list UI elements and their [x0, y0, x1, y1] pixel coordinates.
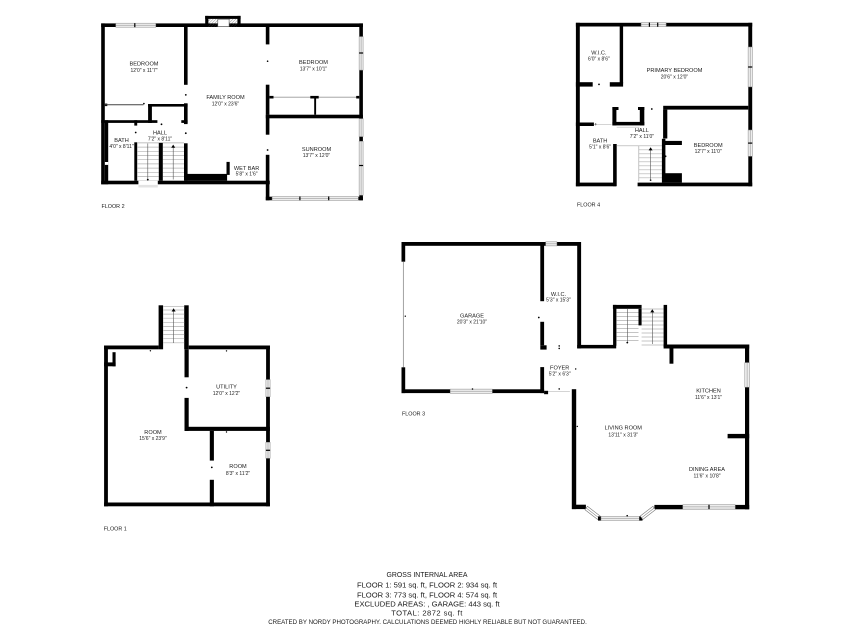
svg-text:BEDROOM: BEDROOM — [299, 60, 328, 66]
svg-text:EXCLUDED AREAS: , GARAGE: 443: EXCLUDED AREAS: , GARAGE: 443 sq. ft — [354, 600, 500, 609]
svg-text:CREATED BY NORDY PHOTOGRAPHY.: CREATED BY NORDY PHOTOGRAPHY. CALCULATIO… — [268, 619, 587, 626]
svg-text:12'0" x 11'7": 12'0" x 11'7" — [130, 68, 157, 74]
svg-text:13'11" x 31'3": 13'11" x 31'3" — [608, 433, 638, 439]
svg-text:SUNROOM: SUNROOM — [302, 147, 332, 153]
svg-text:FAMILY ROOM: FAMILY ROOM — [206, 95, 245, 101]
svg-text:FOYER: FOYER — [550, 365, 569, 371]
svg-text:7'2" x 8'11": 7'2" x 8'11" — [148, 137, 172, 143]
svg-text:TOTAL: 2872 sq. ft: TOTAL: 2872 sq. ft — [391, 609, 463, 618]
svg-text:5'8" x 1'6": 5'8" x 1'6" — [236, 172, 258, 178]
svg-text:5'1" x 8'6": 5'1" x 8'6" — [589, 145, 611, 151]
svg-text:FLOOR 1: 591 sq. ft, FLOOR 2:: FLOOR 1: 591 sq. ft, FLOOR 2: 934 sq. ft — [357, 580, 498, 589]
svg-text:UTILITY: UTILITY — [216, 385, 237, 391]
svg-text:20'3" x 21'10": 20'3" x 21'10" — [457, 320, 487, 326]
svg-text:4'0" x 8'11": 4'0" x 8'11" — [109, 144, 133, 150]
svg-text:KITCHEN: KITCHEN — [696, 389, 721, 395]
svg-text:PRIMARY BEDROOM: PRIMARY BEDROOM — [647, 68, 703, 74]
svg-text:20'6" x 12'0": 20'6" x 12'0" — [661, 74, 689, 80]
svg-text:DINING AREA: DINING AREA — [689, 467, 725, 473]
svg-text:LIVING ROOM: LIVING ROOM — [605, 426, 643, 432]
svg-text:GARAGE: GARAGE — [460, 313, 484, 319]
svg-text:11'6" x 13'1": 11'6" x 13'1" — [695, 395, 722, 401]
svg-text:8'3" x 11'2": 8'3" x 11'2" — [226, 471, 250, 477]
svg-text:FLOOR 3: 773 sq. ft, FLOOR 4:: FLOOR 3: 773 sq. ft, FLOOR 4: 574 sq. ft — [357, 590, 498, 599]
svg-text:12'0" x 12'2": 12'0" x 12'2" — [213, 391, 241, 397]
svg-text:11'6" x 10'8": 11'6" x 10'8" — [693, 473, 720, 479]
svg-text:6'0" x 8'6": 6'0" x 8'6" — [588, 57, 610, 63]
svg-text:ROOM: ROOM — [229, 464, 247, 470]
svg-text:12'7" x 11'0": 12'7" x 11'0" — [695, 149, 722, 155]
svg-text:13'7" x 12'0": 13'7" x 12'0" — [303, 153, 331, 159]
svg-text:5'2" x 6'3": 5'2" x 6'3" — [549, 372, 571, 378]
svg-text:FLOOR 4: FLOOR 4 — [577, 203, 600, 209]
svg-text:FLOOR 3: FLOOR 3 — [402, 411, 425, 417]
svg-text:7'2" x 11'0": 7'2" x 11'0" — [630, 134, 654, 140]
svg-text:5'3" x 15'3": 5'3" x 15'3" — [546, 298, 571, 304]
svg-text:FLOOR 2: FLOOR 2 — [102, 204, 125, 210]
svg-text:15'6" x 23'9": 15'6" x 23'9" — [139, 436, 167, 442]
svg-text:BATH: BATH — [593, 138, 608, 144]
svg-text:BEDROOM: BEDROOM — [694, 143, 723, 149]
svg-text:W.I.C.: W.I.C. — [591, 51, 607, 57]
svg-text:12'0" x 23'6": 12'0" x 23'6" — [212, 102, 240, 108]
svg-text:FLOOR 1: FLOOR 1 — [104, 527, 127, 533]
svg-text:13'7" x 10'1": 13'7" x 10'1" — [300, 67, 328, 73]
svg-text:BEDROOM: BEDROOM — [130, 62, 159, 68]
svg-text:GROSS INTERNAL AREA: GROSS INTERNAL AREA — [387, 572, 468, 579]
